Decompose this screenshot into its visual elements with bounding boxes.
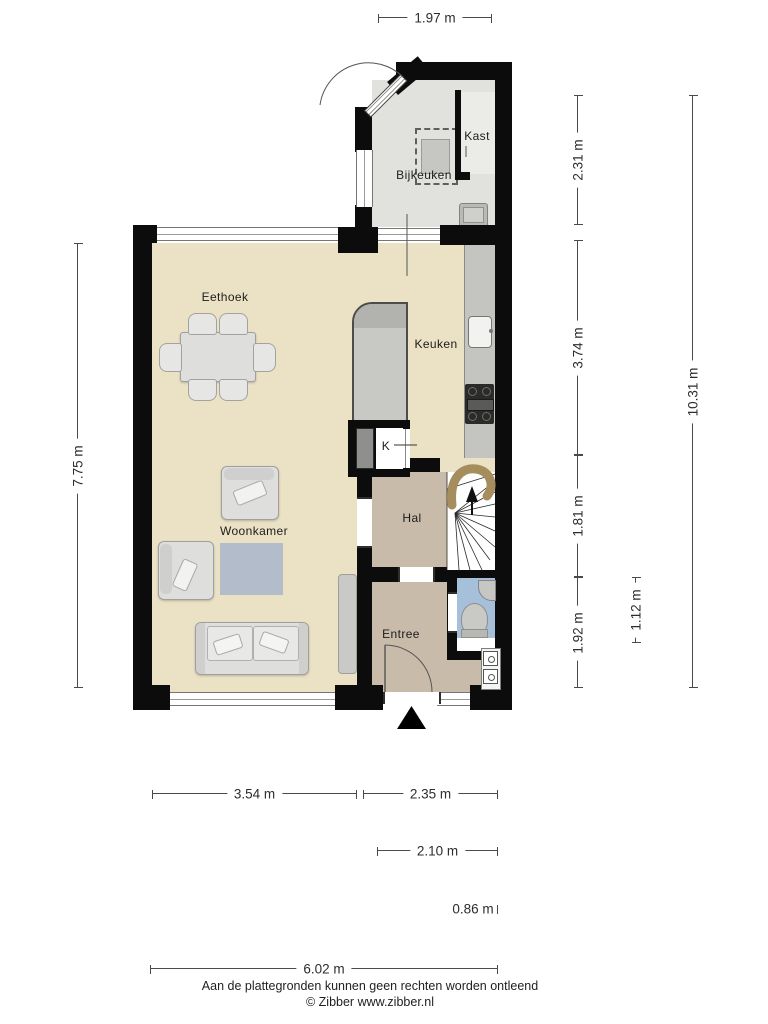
room-label-entree: Entree (382, 627, 420, 641)
dimension-right-seg3: 1.81 m (577, 455, 578, 577)
room-label-hal: Hal (402, 511, 421, 525)
wall (133, 685, 170, 710)
window (356, 150, 373, 207)
dimension-label: 1.12 m (628, 582, 643, 637)
kitchen-faucet (489, 329, 493, 333)
dimension-label: 6.02 m (296, 961, 351, 976)
door-opening-hal-woonkamer (357, 497, 372, 548)
utility-sink-basin (463, 207, 484, 223)
k-closet-door (403, 429, 410, 468)
wall-left (133, 225, 152, 710)
sideboard-cabinet (338, 574, 357, 674)
armchair-back (160, 544, 172, 594)
stove (465, 384, 494, 424)
dining-chair (188, 313, 217, 335)
wall (338, 227, 378, 253)
front-door-opening (383, 692, 441, 704)
dimension-toilet-depth: 1.12 m (635, 577, 636, 643)
dimension-label: 0.86 m (445, 901, 500, 916)
entrance-arrow (397, 706, 426, 729)
rug (220, 543, 283, 595)
toilet-door-opening (448, 592, 457, 633)
dimension-label: 1.97 m (407, 10, 462, 25)
dimension-right-seg1: 2.31 m (577, 95, 578, 225)
burner (482, 387, 491, 396)
wall (357, 567, 398, 582)
meter-box (483, 669, 498, 684)
dimension-bottom-seg4: 0.86 m (448, 908, 498, 909)
dimension-label: 2.31 m (570, 132, 585, 187)
dimension-label: 10.31 m (685, 360, 700, 423)
dimension-bottom-seg2: 2.35 m (363, 793, 498, 794)
dimension-left-height: 7.75 m (77, 243, 78, 688)
footer: Aan de plattegronden kunnen geen rechten… (180, 978, 560, 1011)
dimension-bottom-seg3: 2.10 m (377, 850, 498, 851)
window (378, 228, 440, 241)
wall (455, 172, 470, 180)
wc-cistern (461, 629, 488, 638)
dining-chair (219, 379, 248, 401)
dining-chair (219, 313, 248, 335)
room-label-k-closet: K (382, 439, 390, 453)
dimension-bottom-seg1: 3.54 m (152, 793, 357, 794)
stairs-area (447, 472, 495, 570)
wall-kast-partition (455, 90, 461, 178)
dining-chair (253, 343, 276, 372)
armchair-back (224, 468, 274, 480)
dimension-label: 7.75 m (70, 438, 85, 493)
dimension-total-height: 10.31 m (692, 95, 693, 688)
room-label-kast: Kast (464, 129, 490, 143)
meter-box (483, 651, 498, 666)
burner (482, 412, 491, 421)
window (170, 692, 335, 706)
armchair (158, 541, 214, 600)
wall (440, 225, 495, 245)
dimension-label: 2.10 m (410, 843, 465, 858)
dimension-top-width: 1.97 m (378, 17, 492, 18)
burner (468, 387, 477, 396)
dimension-label: 3.54 m (227, 786, 282, 801)
dimension-total-width: 6.02 m (150, 968, 498, 969)
window (157, 227, 338, 241)
dining-table (180, 332, 256, 382)
sofa-armrest (196, 623, 205, 674)
armchair (221, 466, 279, 520)
armchair-pillow (172, 558, 199, 592)
dimension-label: 1.92 m (570, 605, 585, 660)
kitchen-counter (464, 245, 496, 458)
oven-door (467, 399, 494, 411)
armchair-pillow (232, 480, 268, 507)
burner (468, 412, 477, 421)
footer-disclaimer: Aan de plattegronden kunnen geen rechten… (180, 978, 560, 994)
window (437, 692, 470, 706)
meter-dial (488, 656, 495, 663)
dining-chair (159, 343, 182, 372)
dimension-label: 1.81 m (570, 488, 585, 543)
room-label-eethoek: Eethoek (202, 290, 249, 304)
sofa-armrest (299, 623, 308, 674)
room-label-keuken: Keuken (414, 337, 457, 351)
room-label-woonkamer: Woonkamer (220, 524, 288, 538)
meter-dial (488, 674, 495, 681)
k-closet-cupboard (356, 428, 374, 469)
sofa (195, 622, 309, 675)
dining-chair (188, 379, 217, 401)
dimension-right-seg4: 1.92 m (577, 577, 578, 688)
floorplan-page: Eethoek Keuken Woonkamer Hal Entree Bijk… (0, 0, 768, 1024)
door-opening-hal-entree (398, 567, 435, 582)
dimension-right-seg2: 3.74 m (577, 240, 578, 455)
dimension-label: 2.35 m (403, 786, 458, 801)
room-label-bijkeuken: Bijkeuken (396, 168, 452, 182)
dimension-label: 3.74 m (570, 320, 585, 375)
kitchen-peninsula-top (354, 304, 406, 328)
footer-credit: © Zibber www.zibber.nl (180, 994, 560, 1010)
